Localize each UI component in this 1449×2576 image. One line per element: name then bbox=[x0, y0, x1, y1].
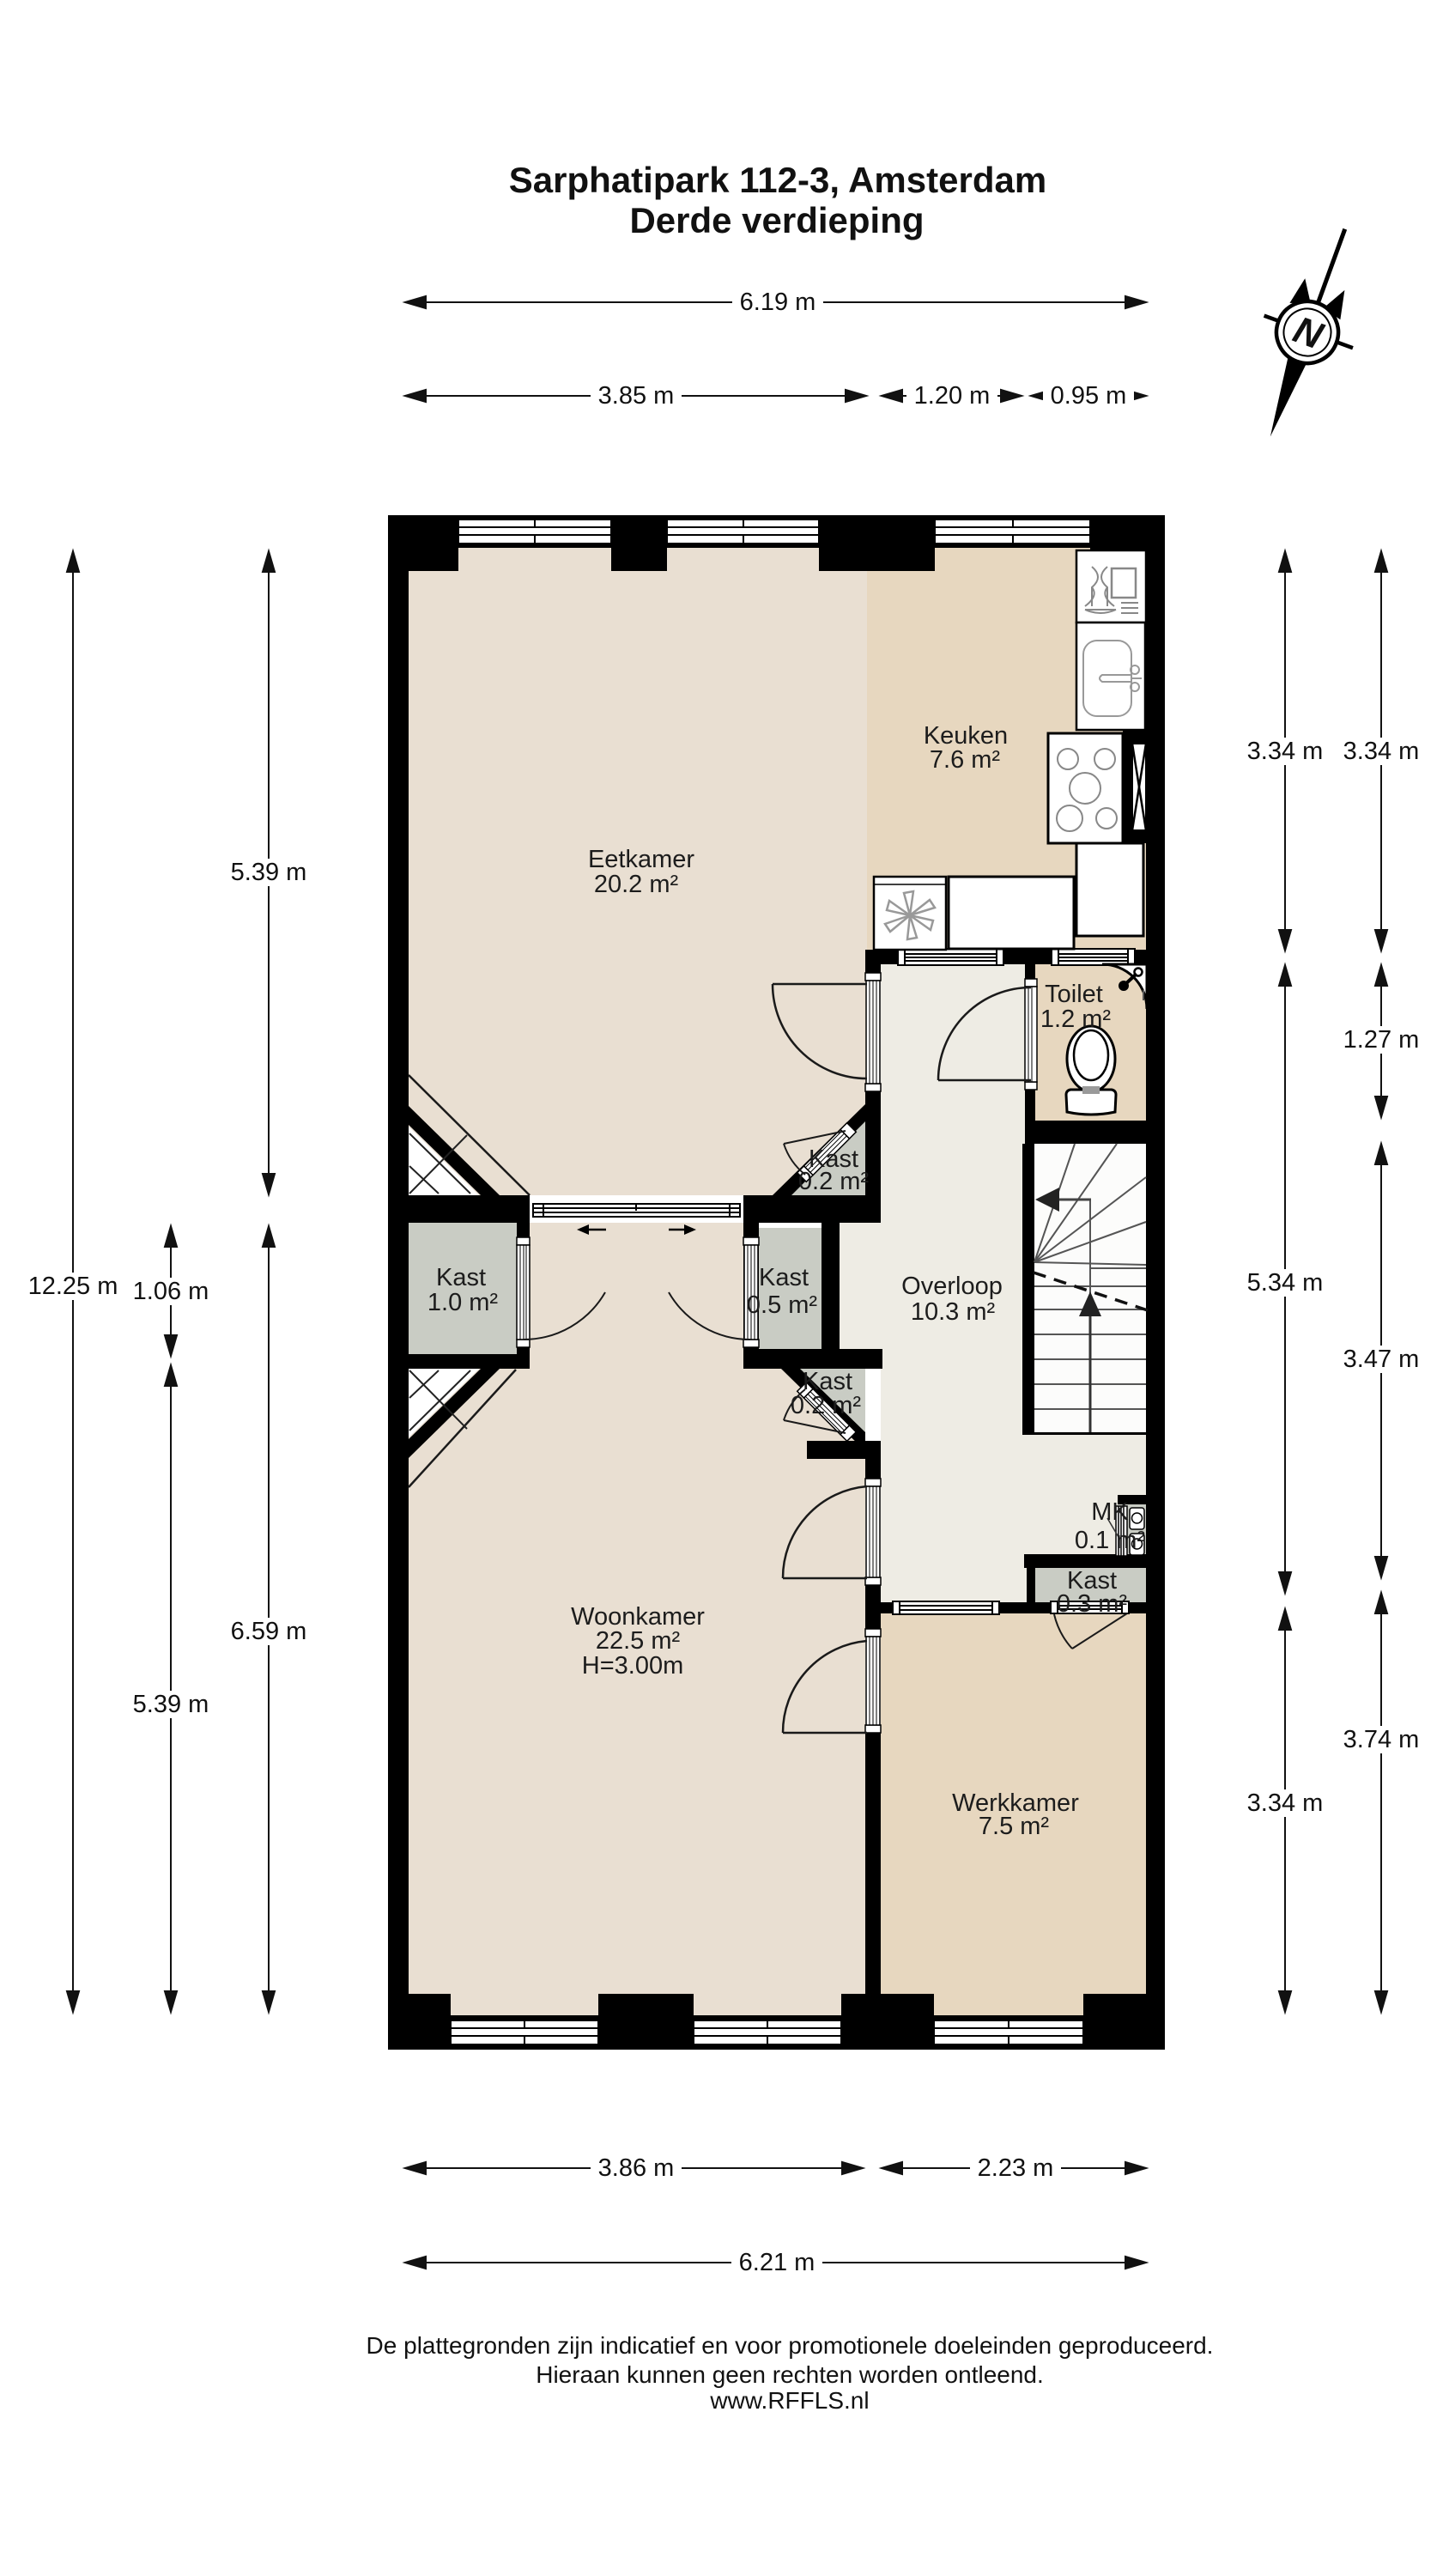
svg-text:3.74 m: 3.74 m bbox=[1343, 1726, 1420, 1753]
svg-text:22.5 m²: 22.5 m² bbox=[596, 1627, 681, 1655]
svg-text:Sarphatipark 112-3, Amsterdam: Sarphatipark 112-3, Amsterdam bbox=[509, 160, 1046, 200]
svg-text:Kast: Kast bbox=[436, 1264, 486, 1291]
svg-text:0.2 m²: 0.2 m² bbox=[798, 1168, 870, 1195]
svg-text:3.86 m: 3.86 m bbox=[598, 2154, 675, 2182]
svg-text:Hieraan kunnen geen rechten wo: Hieraan kunnen geen rechten worden ontle… bbox=[536, 2361, 1044, 2388]
svg-text:7.5 m²: 7.5 m² bbox=[979, 1813, 1050, 1840]
svg-text:10.3 m²: 10.3 m² bbox=[911, 1298, 996, 1326]
svg-text:3.34 m: 3.34 m bbox=[1247, 738, 1324, 765]
svg-text:6.19 m: 6.19 m bbox=[740, 289, 816, 316]
svg-text:MK: MK bbox=[1091, 1498, 1129, 1526]
svg-text:0.3 m²: 0.3 m² bbox=[1057, 1590, 1128, 1618]
svg-text:De plattegronden zijn indicati: De plattegronden zijn indicatief en voor… bbox=[367, 2332, 1214, 2359]
svg-text:0.5 m²: 0.5 m² bbox=[747, 1291, 818, 1319]
svg-text:5.39 m: 5.39 m bbox=[133, 1691, 209, 1718]
svg-text:Kast: Kast bbox=[759, 1264, 809, 1291]
svg-text:1.06 m: 1.06 m bbox=[133, 1278, 209, 1305]
svg-text:6.21 m: 6.21 m bbox=[739, 2249, 815, 2276]
svg-text:0.2 m²: 0.2 m² bbox=[791, 1392, 862, 1419]
svg-text:6.59 m: 6.59 m bbox=[231, 1618, 307, 1645]
svg-text:1.0 m²: 1.0 m² bbox=[427, 1289, 499, 1316]
svg-text:1.27 m: 1.27 m bbox=[1343, 1026, 1420, 1054]
svg-text:1.20 m: 1.20 m bbox=[914, 382, 991, 410]
svg-text:3.47 m: 3.47 m bbox=[1343, 1346, 1420, 1373]
svg-text:3.34 m: 3.34 m bbox=[1343, 738, 1420, 765]
svg-text:5.34 m: 5.34 m bbox=[1247, 1269, 1324, 1297]
svg-text:H=3.00m: H=3.00m bbox=[582, 1652, 683, 1680]
svg-text:12.25 m: 12.25 m bbox=[28, 1273, 118, 1300]
svg-text:Overloop: Overloop bbox=[901, 1273, 1003, 1300]
svg-text:5.39 m: 5.39 m bbox=[231, 859, 307, 886]
svg-text:2.23 m: 2.23 m bbox=[978, 2154, 1054, 2182]
svg-text:www.RFFLS.nl: www.RFFLS.nl bbox=[709, 2387, 869, 2414]
svg-text:7.6 m²: 7.6 m² bbox=[930, 746, 1001, 774]
svg-text:Derde verdieping: Derde verdieping bbox=[629, 200, 924, 240]
svg-text:20.2 m²: 20.2 m² bbox=[594, 871, 679, 898]
svg-text:0.1 m²: 0.1 m² bbox=[1075, 1527, 1146, 1554]
svg-text:Eetkamer: Eetkamer bbox=[588, 846, 694, 873]
svg-text:3.85 m: 3.85 m bbox=[598, 382, 675, 410]
svg-text:3.34 m: 3.34 m bbox=[1247, 1789, 1324, 1817]
svg-text:Toilet: Toilet bbox=[1045, 981, 1103, 1008]
svg-text:1.2 m²: 1.2 m² bbox=[1040, 1005, 1112, 1033]
svg-text:0.95 m: 0.95 m bbox=[1051, 382, 1127, 410]
